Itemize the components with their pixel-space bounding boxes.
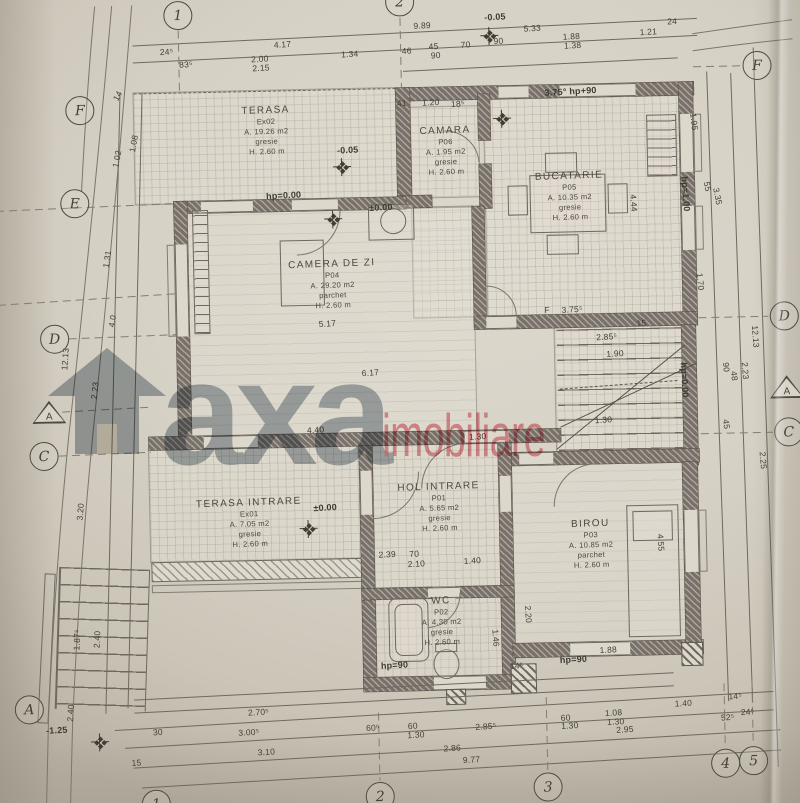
dimension-label: 2.10 <box>407 558 425 569</box>
window-sill <box>695 206 704 250</box>
dimension-label: 2.70⁵ <box>248 706 270 717</box>
dimension-label: 1.88 <box>599 644 617 655</box>
kitchen-chair <box>508 185 529 215</box>
window-opening <box>681 206 696 250</box>
grid-marker-4: 4 <box>711 748 741 778</box>
dimension-label: F <box>544 305 550 315</box>
door-opening <box>486 316 516 330</box>
dimension-label: 2.39 <box>378 549 396 560</box>
grid-marker-A: A <box>32 400 66 424</box>
dimension-label: 4.40 <box>307 424 325 435</box>
grid-marker-2: 2 <box>385 0 415 17</box>
dimension-label: 9.89 <box>413 20 431 31</box>
survey-cross-square <box>94 736 107 749</box>
survey-cross-icon <box>333 158 351 176</box>
window-opening <box>175 244 190 336</box>
dimension-label: 2.20 <box>523 605 534 623</box>
room-label-line: H. 2.60 m <box>243 146 292 158</box>
terasa-intrare-parapet <box>151 558 363 582</box>
dimension-label: 4.17 <box>274 39 292 50</box>
room-label-line: A. 4.30 m2 <box>422 617 462 628</box>
dimension-label: 2.86 <box>443 743 461 754</box>
dimension-label: 4.44 <box>628 194 639 212</box>
dimension-label: 30 <box>153 727 163 738</box>
room-label-line: TERASA <box>241 104 290 117</box>
room-label-camara: CAMARAP06A. 1.95 m2gresieH. 2.60 m <box>419 124 472 177</box>
room-label-terasa-intrare: TERASA INTRAREEx01A. 7.05 m2gresieH. 2.6… <box>196 496 303 551</box>
dimension-label: 52⁵ <box>721 712 735 723</box>
dimension-label: 1.31 <box>101 250 114 269</box>
room-label-line: H. 2.60 m <box>422 636 462 647</box>
dimension-label: 2.15 <box>252 62 270 73</box>
dimension-label: 1.90 <box>606 348 624 359</box>
survey-cross-icon <box>480 27 498 45</box>
dimension-label: 2.40 <box>65 704 76 722</box>
dimension-label: 1.46 <box>490 629 501 647</box>
window-opening <box>204 435 258 449</box>
dimension-label: 1.70 <box>695 273 707 291</box>
dimension-label: 3.35 <box>711 187 724 206</box>
level-annotation: hp=0.00 <box>266 189 302 201</box>
grid-marker-label: A <box>32 411 66 423</box>
level-annotation: hp=90 <box>560 654 588 666</box>
dimension-label: 14⁵ <box>728 691 742 702</box>
dimension-label: 4.55 <box>655 534 666 552</box>
room-label-line: H. 2.60 m <box>421 166 473 178</box>
dimension-label: 1.40 <box>674 698 692 709</box>
survey-cross-square <box>336 161 349 174</box>
wall <box>456 586 514 598</box>
room-label-line: A. 1.95 m2 <box>420 146 472 158</box>
survey-cross-square <box>496 112 509 125</box>
main-entrance-opening <box>359 471 373 515</box>
room-label-line: A. 10.85 m2 <box>569 539 614 550</box>
room-label-line: H. 2.60 m <box>569 559 614 570</box>
grid-marker-E: E <box>60 189 90 219</box>
dimension-label: 1.95 <box>688 113 700 131</box>
dimension-label: 2.40 <box>91 630 102 648</box>
dimension-label: 1.30 <box>407 729 425 740</box>
door-opening <box>292 198 338 211</box>
window-opening <box>201 200 253 213</box>
grid-marker-1: 1 <box>163 1 193 31</box>
dimension-line <box>142 750 781 789</box>
dimension-label: 1.02 <box>110 149 123 168</box>
room-label-line: CAMARA <box>419 124 471 137</box>
dimension-label: 83⁵ <box>179 59 193 70</box>
dimension-label: 46 <box>401 46 411 57</box>
grid-marker-C: C <box>29 442 59 472</box>
survey-cross-icon <box>299 520 317 538</box>
dimension-label: 4.0 <box>106 314 118 328</box>
level-annotation: -0.05 <box>337 144 359 155</box>
dimension-label: 6.17 <box>361 367 379 378</box>
dimension-label: 2.23 <box>89 381 101 399</box>
dimension-line <box>403 57 678 71</box>
dimension-label: 3.75⁵ <box>561 304 583 315</box>
dimension-label: 24 <box>667 16 677 27</box>
fridge <box>646 114 677 177</box>
dimension-label: 15 <box>636 318 646 329</box>
dimension-label: 15 <box>131 757 141 768</box>
level-annotation: -0.05 <box>484 11 506 22</box>
dimension-label: 70 <box>409 548 419 559</box>
level-annotation: ±0.00 <box>369 202 393 213</box>
porch-edge <box>152 581 364 593</box>
dimension-label: 1.40 <box>463 555 481 566</box>
window-sill <box>698 510 707 572</box>
dimension-label: 3.00⁵ <box>238 727 260 738</box>
dimension-label: 2.85⁵ <box>596 331 618 342</box>
dimension-label: 3.10 <box>257 746 275 757</box>
dimension-label: 1.20 <box>422 97 440 108</box>
survey-cross-square <box>302 523 315 536</box>
grid-marker-F: F <box>65 96 95 126</box>
kitchen-chair <box>607 183 628 213</box>
dimension-label: 14 <box>111 89 125 102</box>
wall <box>479 164 492 208</box>
dimension-label: 1.21 <box>639 26 657 37</box>
survey-cross-square <box>483 30 496 43</box>
dimension-label: 48 <box>729 371 740 382</box>
dimension-label: 24⁵ <box>160 46 174 57</box>
room-label-bucatarie: BUCATARIEP05A. 10.35 m2gresieH. 2.60 m <box>535 170 605 224</box>
survey-cross-icon <box>91 733 109 751</box>
floor-plan-photo: TERASAEx02A. 19.26 m2gresieH. 2.60 mCAMA… <box>0 0 800 803</box>
corner-pier-hatch <box>681 642 703 666</box>
grid-marker-2: 2 <box>365 782 395 803</box>
room-label-birou: BIROUP03A. 10.85 m2parchetH. 2.60 m <box>568 518 614 571</box>
room-label-line: WC <box>421 595 461 607</box>
level-annotation: ±0.00 <box>313 502 337 513</box>
dimension-line <box>730 73 753 703</box>
window-opening <box>498 85 528 99</box>
dimension-label: 45 <box>721 419 732 430</box>
dimension-label: 9.77 <box>463 754 481 765</box>
room-label-line: BIROU <box>568 518 613 531</box>
dimension-label: 2.95 <box>616 724 634 735</box>
living-shelf <box>192 210 211 334</box>
dimension-label: 1.30 <box>561 720 579 731</box>
dimension-label: 70 <box>460 39 470 50</box>
dimension-line <box>133 35 697 64</box>
floor-plan-drawing: TERASAEx02A. 19.26 m2gresieH. 2.60 mCAMA… <box>0 0 800 803</box>
room-label-wc: WCP02A. 4.30 m2gresieH. 2.60 m <box>421 595 463 648</box>
dimension-label: 5.33 <box>523 23 541 34</box>
dimension-label: 1.30 <box>469 431 487 442</box>
survey-cross-icon <box>324 210 342 228</box>
dimension-line <box>706 71 729 701</box>
survey-cross-icon <box>493 110 511 128</box>
birou-pillow <box>632 510 673 541</box>
grid-marker-1: 1 <box>142 789 172 803</box>
room-label-line: A. 19.26 m2 <box>242 126 291 138</box>
dimension-label: 14⁵ <box>509 660 523 671</box>
dimension-label: 1.38 <box>564 40 582 51</box>
bathtub-inner <box>394 604 423 657</box>
wall <box>478 94 491 140</box>
window-opening <box>683 510 699 572</box>
level-annotation: hp=0.00 <box>679 362 691 398</box>
door-opening <box>499 476 513 512</box>
dimension-label: 24⁵ <box>741 706 755 717</box>
dimension-label: 1.34 <box>341 49 359 60</box>
dimension-label: 18⁵ <box>451 98 465 109</box>
door-opening <box>519 452 553 466</box>
dimension-label: 60⁵ <box>366 722 380 733</box>
dimension-label: 12.13 <box>750 325 762 348</box>
kitchen-chair <box>547 234 579 255</box>
dimension-label: 1.30 <box>594 414 612 425</box>
dimension-label: 3.20 <box>75 503 86 521</box>
exterior-stairs <box>55 567 150 712</box>
wall <box>472 206 487 328</box>
level-annotation: -1.25 <box>46 725 68 736</box>
dimension-label: 5.17 <box>318 318 336 329</box>
dimension-label: 1.87⁵ <box>71 629 82 651</box>
dimension-label: 2.23 <box>740 362 751 380</box>
dimension-label: 90 <box>431 50 441 61</box>
dimension-label: 2.85⁵ <box>475 721 497 732</box>
survey-cross-square <box>327 213 340 226</box>
room-label-hol-intrare: HOL INTRAREP01A. 5.65 m2gresieH. 2.60 m <box>397 480 481 534</box>
dimension-label: 41 <box>397 98 407 109</box>
level-annotation: hp=90 <box>381 659 409 671</box>
room-label-camera-de-zi: CAMERA DE ZIP04A. 29.20 m2parchetH. 2.60… <box>288 257 377 311</box>
room-label-terasa: TERASAEx02A. 19.26 m2gresieH. 2.60 m <box>241 104 291 157</box>
grid-marker-3: 3 <box>533 772 563 802</box>
